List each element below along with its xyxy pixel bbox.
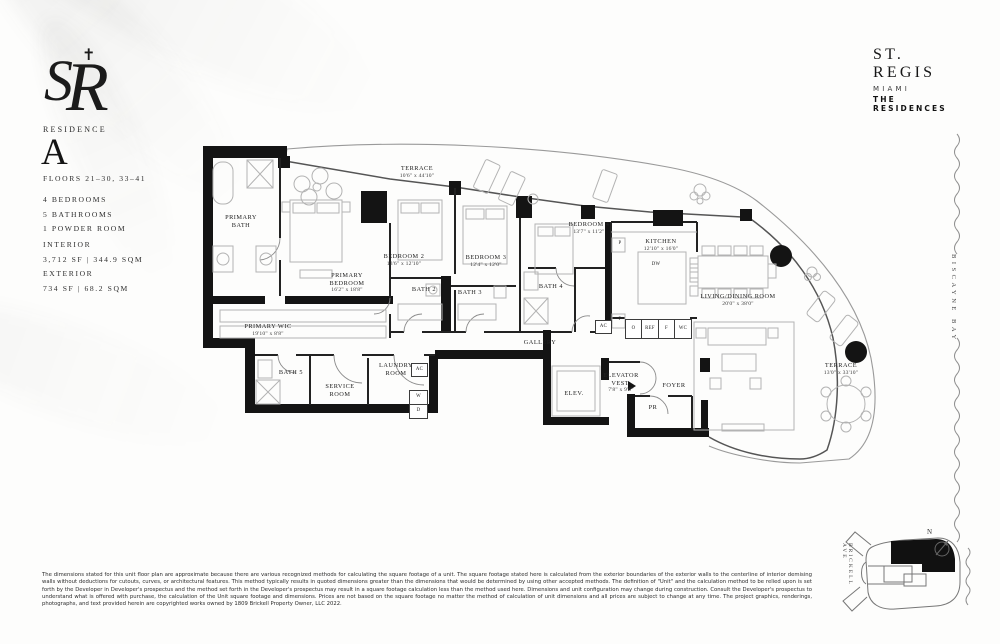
room-label-bedroom-4: BEDROOM 413'7" x 11'2"	[559, 221, 619, 236]
fridge-label: REF	[641, 319, 659, 339]
brand-residences: THE RESIDENCES	[873, 95, 973, 113]
freezer-label: F	[658, 319, 675, 339]
room-label-primary-bath: PRIMARY BATH	[218, 214, 264, 229]
room-label-bath-3: BATH 3	[457, 289, 483, 297]
svg-text:✝: ✝	[82, 47, 95, 64]
room-label-gallery: GALLERY	[515, 339, 565, 347]
brand-name: ST. REGIS	[873, 46, 973, 82]
room-label-bath-4: BATH 4	[538, 283, 564, 291]
oven-label: O	[625, 319, 642, 339]
brand-block: ST. REGIS MIAMI THE RESIDENCES	[873, 46, 973, 113]
feature-bedrooms: 4 BEDROOMS	[43, 193, 126, 208]
north-label: N	[927, 528, 932, 536]
room-label-service-room: SERVICE ROOM	[317, 383, 363, 398]
room-label-bath-2: BATH 2	[402, 286, 446, 294]
dishwasher-label: DW	[648, 263, 664, 268]
pantry-label: P	[615, 242, 625, 247]
pantry-label: P	[615, 318, 625, 323]
key-plan	[835, 510, 985, 625]
room-label-living-dining: LIVING/DINING ROOM20'0" x 38'0"	[678, 293, 798, 308]
floor-plan-sheet: { "brand": { "monogram": "SR", "name": "…	[0, 0, 1000, 644]
room-label-elevator-vest: ELEVATOR VEST.7'8" x 9'6"	[594, 372, 648, 395]
wine-cooler-label: WC	[674, 319, 692, 339]
room-label-kitchen: KITCHEN12'10" x 16'0"	[631, 238, 691, 253]
room-label-terrace-top: TERRACE10'6" x 44'10"	[377, 165, 457, 180]
biscayne-bay-label: BISCAYNE BAY	[950, 254, 957, 344]
room-label-terrace-right: TERRACE13'0" x 33'10"	[801, 362, 881, 377]
exterior-value: 734 SF | 68.2 SQM	[43, 282, 143, 297]
room-label-foyer: FOYER	[654, 382, 694, 390]
room-label-bedroom-2: BEDROOM 213'6" x 12'10"	[374, 253, 434, 268]
ac-label: AC	[411, 363, 428, 377]
residence-letter: A	[41, 131, 69, 174]
area-block: INTERIOR 3,712 SF | 344.9 SQM EXTERIOR 7…	[43, 238, 143, 296]
room-label-elevator: ELEV.	[559, 390, 589, 398]
room-label-primary-bedroom: PRIMARY BEDROOM16'2" x 18'8"	[318, 272, 376, 295]
brickell-ave-label: BRICKELL AVE	[841, 543, 853, 605]
feature-powder: 1 POWDER ROOM	[43, 222, 126, 237]
structural-walls	[203, 146, 867, 437]
room-label-primary-wic: PRIMARY WIC19'10" x 8'8"	[223, 323, 313, 338]
key-plan-shoreline	[966, 548, 970, 605]
floor-plan-drawing	[195, 128, 945, 473]
interior-label: INTERIOR	[43, 238, 143, 253]
disclaimer-text: The dimensions stated for this unit floo…	[42, 572, 812, 608]
feature-bathrooms: 5 BATHROOMS	[43, 208, 126, 223]
room-label-bedroom-3: BEDROOM 312'4" x 12'0"	[456, 254, 516, 269]
ac-label: AC	[595, 320, 612, 334]
residence-features: 4 BEDROOMS 5 BATHROOMS 1 POWDER ROOM	[43, 193, 126, 237]
brand-city: MIAMI	[873, 85, 973, 93]
room-label-powder-room: PR	[643, 404, 663, 412]
residence-floors: FLOORS 21–30, 33–41	[43, 172, 146, 187]
interior-value: 3,712 SF | 344.9 SQM	[43, 253, 143, 268]
room-label-bath-5: BATH 5	[269, 369, 313, 377]
st-regis-monogram: S R ✝	[30, 26, 125, 126]
washer-label: W	[409, 390, 428, 405]
dryer-label: D	[409, 404, 428, 419]
exterior-label: EXTERIOR	[43, 267, 143, 282]
